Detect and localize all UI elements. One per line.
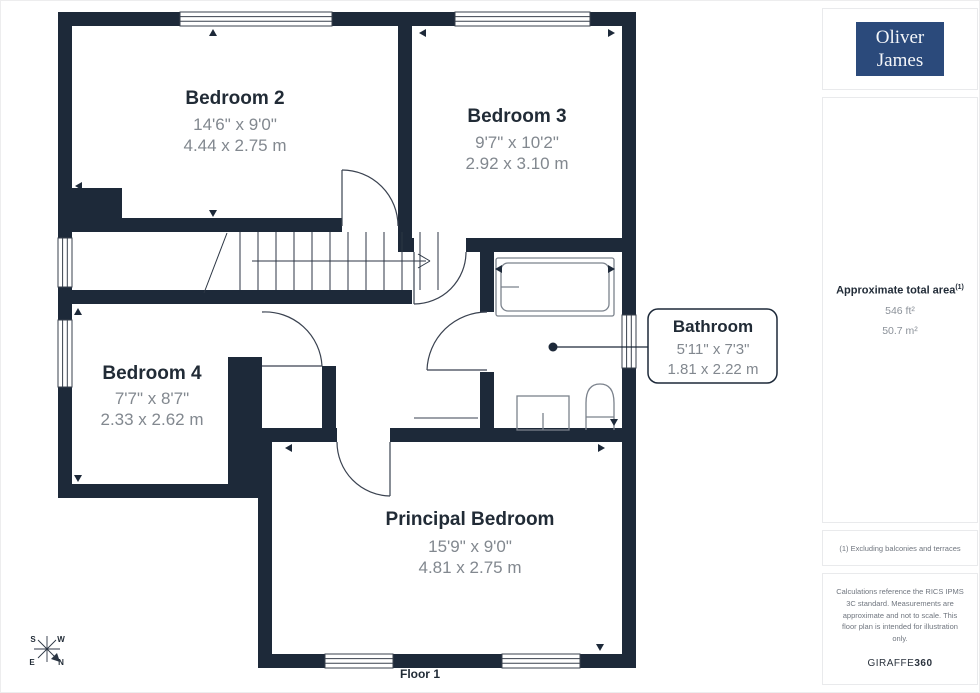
room-name-bedroom4: Bedroom 4: [102, 363, 202, 384]
compass-icon: S W E N: [29, 635, 65, 667]
stair-break-line: [204, 233, 227, 293]
room-metric-bedroom4: 2.33 x 2.62 m: [100, 410, 203, 429]
info-sidebar: Oliver James Approximate total area(1) 5…: [822, 8, 978, 685]
door-bathroom: [427, 312, 487, 370]
room-metric-bathroom: 1.81 x 2.22 m: [668, 361, 759, 378]
compass-e: E: [29, 658, 35, 667]
room-imperial-bedroom2: 14'6" x 9'0": [193, 115, 277, 134]
area-imperial: 546 ft²: [885, 305, 915, 317]
room-name-bedroom2: Bedroom 2: [185, 88, 284, 109]
window: [58, 320, 72, 387]
door-bedroom2: [342, 170, 398, 226]
giraffe360-suffix: 360: [914, 658, 932, 669]
area-metric: 50.7 m²: [882, 325, 918, 337]
giraffe360-logo: GIRAFFE360: [835, 656, 965, 672]
room-name-bathroom: Bathroom: [673, 317, 753, 336]
room-labels: Bedroom 2 14'6" x 9'0" 4.44 x 2.75 m Bed…: [100, 88, 568, 577]
disclaimer-panel: Calculations reference the RICS IPMS 3C …: [822, 573, 978, 685]
compass-n: N: [58, 658, 64, 667]
logo-line-1: Oliver: [876, 26, 925, 49]
room-metric-bedroom3: 2.92 x 3.10 m: [465, 154, 568, 173]
room-metric-principal: 4.81 x 2.75 m: [418, 558, 521, 577]
window: [502, 654, 580, 668]
footnote-panel: (1) Excluding balconies and terraces: [822, 530, 978, 566]
area-footnote-marker: (1): [955, 284, 964, 291]
room-imperial-principal: 15'9" x 9'0": [428, 537, 512, 556]
window: [180, 12, 332, 26]
room-imperial-bathroom: 5'11" x 7'3": [677, 341, 750, 358]
logo-panel: Oliver James: [822, 8, 978, 90]
door-closet: [262, 312, 322, 366]
room-metric-bedroom2: 4.44 x 2.75 m: [183, 136, 286, 155]
floor-label: Floor 1: [400, 667, 440, 681]
toilet: [586, 384, 614, 430]
stair-direction-arrow: [252, 254, 430, 268]
window: [455, 12, 590, 26]
footnote-text: (1) Excluding balconies and terraces: [839, 544, 960, 553]
total-area-panel: Approximate total area(1) 546 ft² 50.7 m…: [822, 97, 978, 523]
room-imperial-bedroom3: 9'7" x 10'2": [475, 133, 559, 152]
window: [622, 315, 636, 368]
compass-s: S: [30, 635, 36, 644]
door-principal: [337, 442, 390, 496]
room-name-principal: Principal Bedroom: [386, 509, 555, 530]
room-name-bedroom3: Bedroom 3: [467, 106, 566, 127]
bathtub: [496, 258, 614, 316]
disclaimer-text: Calculations reference the RICS IPMS 3C …: [835, 586, 965, 644]
compass-w: W: [57, 635, 65, 644]
room-imperial-bedroom4: 7'7" x 8'7": [115, 389, 189, 408]
logo-line-2: James: [877, 49, 923, 72]
bathroom-callout: Bathroom 5'11" x 7'3" 1.81 x 2.22 m: [549, 309, 778, 383]
window: [58, 238, 72, 287]
window: [325, 654, 393, 668]
oliver-james-logo: Oliver James: [856, 22, 944, 76]
floor-plan: Bedroom 2 14'6" x 9'0" 4.44 x 2.75 m Bed…: [0, 0, 820, 693]
door-bedroom3: [414, 252, 466, 304]
area-title: Approximate total area(1): [836, 284, 964, 297]
sink: [517, 396, 569, 430]
